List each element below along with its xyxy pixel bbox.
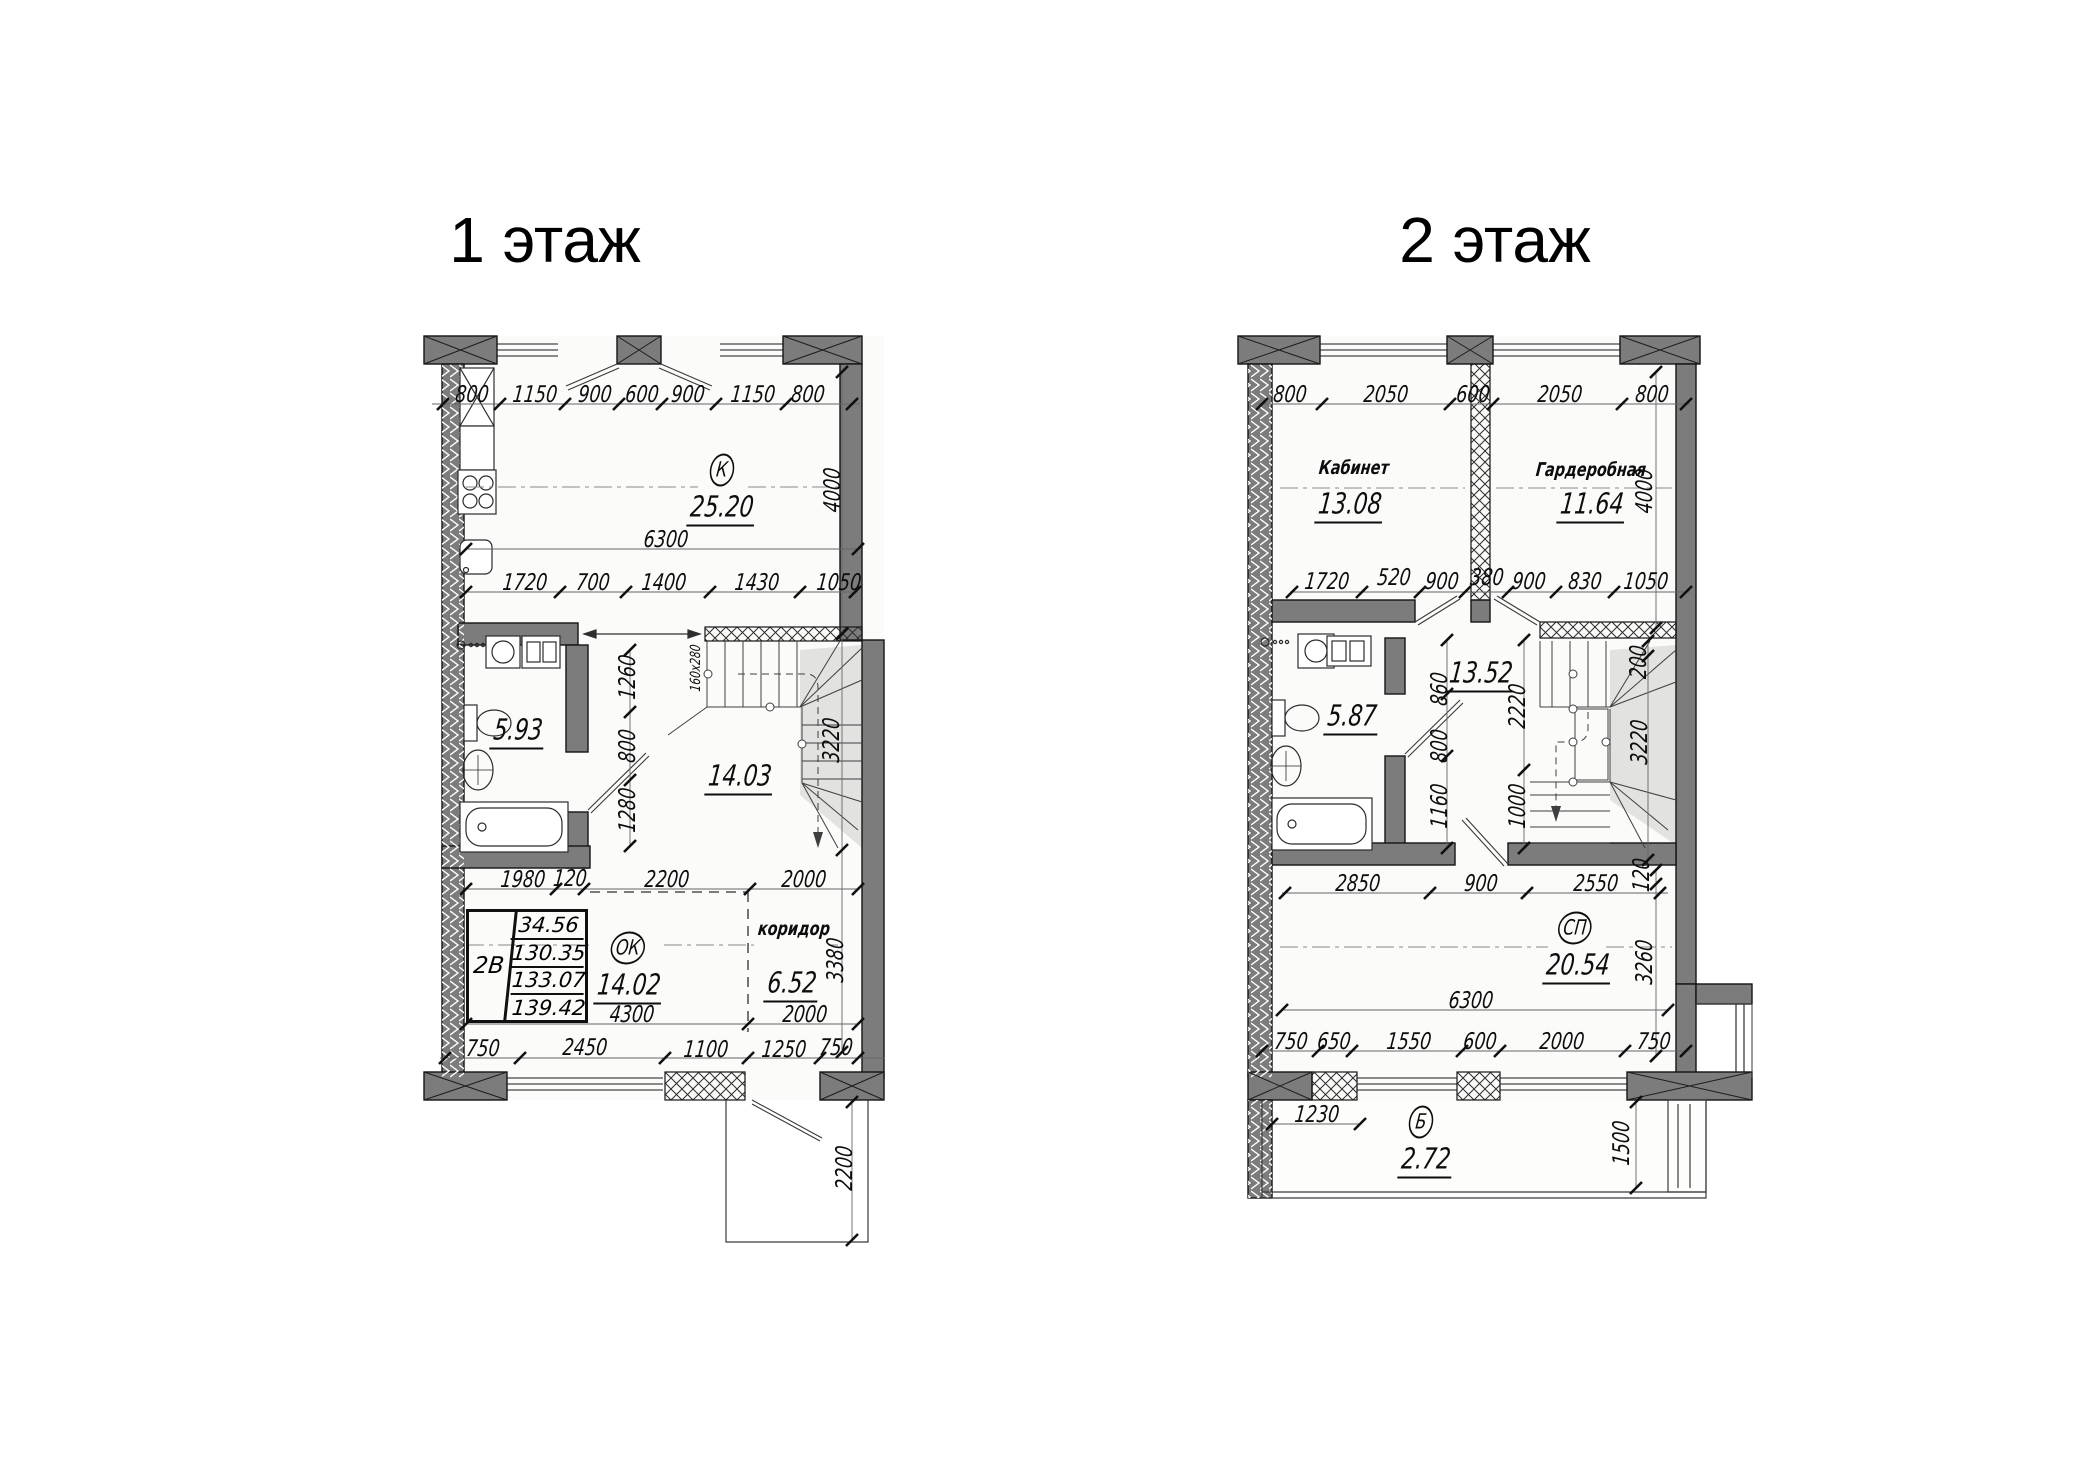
floor1-porch xyxy=(726,1100,868,1242)
area-value: 34.56 xyxy=(510,912,586,940)
floor-2-title: 2 этаж xyxy=(1399,203,1591,277)
toilet-icon xyxy=(1272,700,1285,736)
floorplan-drawing xyxy=(0,0,2100,1476)
floor1-plan xyxy=(424,336,884,1246)
toilet-icon xyxy=(464,705,477,741)
bathtub-icon xyxy=(460,802,568,852)
apartment-type: 2В xyxy=(463,912,517,1020)
floor-1-title: 1 этаж xyxy=(449,203,641,277)
kitchen-sink-icon xyxy=(460,540,492,574)
floorplan-sheet: 1 этаж 2 этаж 80011509006009001150800К25… xyxy=(0,0,2100,1476)
cabinet-icon xyxy=(522,636,560,668)
area-value: 130.35 xyxy=(510,940,586,968)
stove-icon xyxy=(458,470,496,514)
area-value: 139.42 xyxy=(510,995,586,1021)
area-value: 133.07 xyxy=(510,967,586,995)
counter-icon xyxy=(460,426,494,470)
floor2-plan xyxy=(1238,336,1752,1198)
floor1-kitchen-fixtures xyxy=(458,368,496,574)
floor2-wall-texture xyxy=(1248,364,1272,1198)
apartment-info-table: 2В 34.56 130.35 133.07 139.42 xyxy=(466,909,588,1023)
